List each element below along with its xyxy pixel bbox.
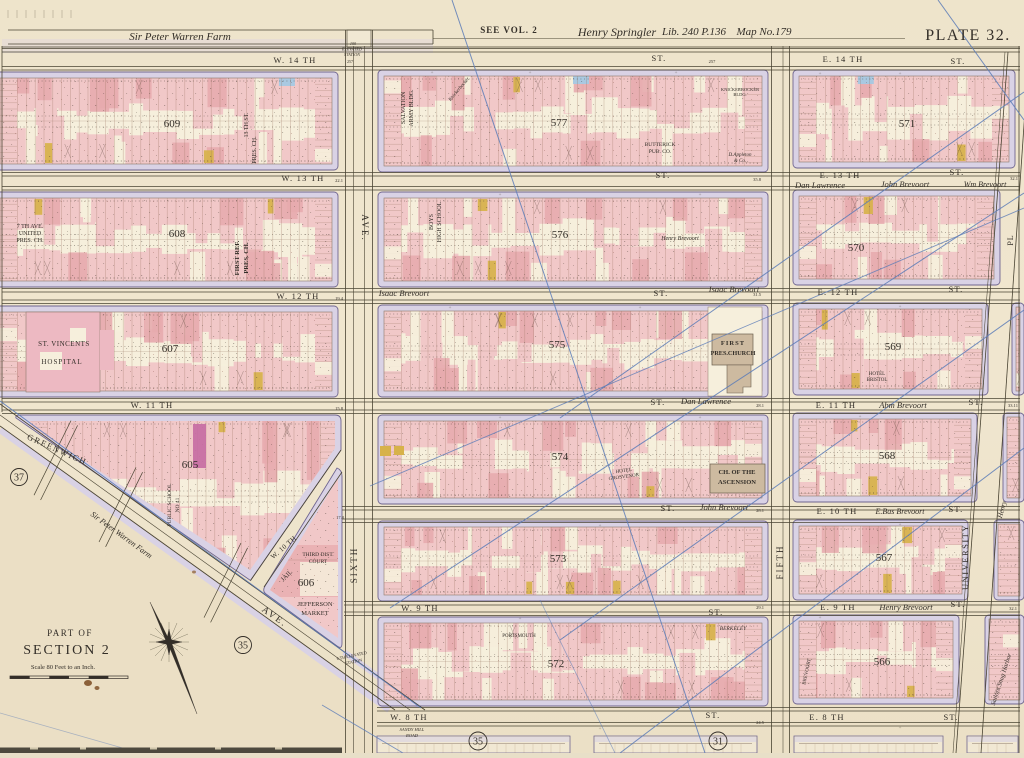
svg-text:Isaac Brevoort: Isaac Brevoort — [708, 284, 760, 294]
svg-text:PLATE 32.: PLATE 32. — [925, 27, 1011, 44]
svg-text:+: + — [699, 416, 702, 421]
svg-text:+: + — [899, 726, 902, 731]
svg-text:ARMY BLDG.: ARMY BLDG. — [409, 89, 415, 127]
svg-text:NO 41: NO 41 — [175, 497, 181, 512]
svg-text:SEE VOL. 2: SEE VOL. 2 — [480, 25, 537, 35]
svg-text:+: + — [449, 306, 452, 311]
svg-text:ASCENSION: ASCENSION — [718, 479, 756, 486]
svg-text:606: 606 — [298, 577, 315, 589]
svg-text:566: 566 — [874, 656, 891, 668]
svg-text:ELEVATED: ELEVATED — [341, 47, 362, 52]
svg-text:+: + — [599, 727, 602, 732]
svg-text:+: + — [899, 523, 902, 528]
svg-text:7 TH AVE.: 7 TH AVE. — [17, 224, 44, 230]
svg-text:15.8: 15.8 — [335, 406, 344, 411]
svg-text:Map No.179: Map No.179 — [736, 26, 793, 38]
svg-text:W. 8 TH: W. 8 TH — [390, 712, 427, 722]
svg-text:SALVATION: SALVATION — [401, 91, 407, 124]
svg-text:+: + — [899, 72, 902, 77]
svg-text:605: 605 — [182, 459, 199, 471]
svg-text:SIXTH: SIXTH — [349, 547, 359, 584]
svg-text:571: 571 — [899, 118, 916, 130]
svg-text:13 TH ST.: 13 TH ST. — [244, 112, 250, 137]
svg-text:PART OF: PART OF — [47, 628, 93, 638]
svg-text:+: + — [431, 71, 434, 76]
svg-text:574: 574 — [552, 451, 569, 463]
svg-text:ST.: ST. — [948, 504, 963, 514]
svg-text:+: + — [529, 71, 532, 76]
svg-text:609: 609 — [164, 118, 181, 130]
svg-text:32.1: 32.1 — [1010, 176, 1018, 181]
svg-text:35: 35 — [473, 737, 483, 748]
svg-text:BOYS: BOYS — [429, 214, 435, 230]
svg-text:E. 8 TH: E. 8 TH — [809, 712, 844, 722]
svg-text:ST.: ST. — [651, 53, 666, 63]
svg-text:SANDY HILL: SANDY HILL — [400, 727, 425, 732]
svg-text:UNIVERSITY: UNIVERSITY — [960, 524, 970, 590]
svg-text:35: 35 — [238, 641, 248, 652]
svg-text:+: + — [819, 72, 822, 77]
svg-text:ST.: ST. — [705, 710, 720, 720]
svg-text:Isaac Brevoort: Isaac Brevoort — [378, 288, 430, 298]
svg-text:575: 575 — [549, 339, 566, 351]
svg-text:37: 37 — [14, 473, 24, 484]
svg-text:28.1: 28.1 — [756, 508, 764, 513]
svg-text:HOSPITAL: HOSPITAL — [41, 358, 82, 366]
svg-text:W. 13 TH: W. 13 TH — [282, 173, 325, 183]
svg-text:Henry Springler: Henry Springler — [577, 25, 657, 39]
svg-text:ST.: ST. — [653, 288, 668, 298]
svg-text:E. 14 TH: E. 14 TH — [823, 54, 864, 64]
svg-text:ST.: ST. — [708, 607, 723, 617]
svg-text:W. 11 TH: W. 11 TH — [131, 400, 174, 410]
svg-text:AVE.: AVE. — [360, 214, 370, 242]
svg-text:32.1: 32.1 — [1009, 606, 1017, 611]
svg-text:SECTION 2: SECTION 2 — [23, 643, 111, 658]
svg-text:Abm Brevoort: Abm Brevoort — [878, 400, 927, 410]
svg-text:PL: PL — [1006, 234, 1015, 245]
svg-text:BERKELEY: BERKELEY — [720, 626, 748, 632]
svg-text:PUB. CO.: PUB. CO. — [649, 149, 672, 155]
svg-text:573: 573 — [550, 553, 567, 565]
svg-text:ST. VINCENTS: ST. VINCENTS — [38, 340, 90, 348]
svg-text:17.8: 17.8 — [336, 515, 345, 520]
svg-text:PRES. CH.: PRES. CH. — [252, 136, 258, 164]
svg-text:STATION: STATION — [344, 52, 360, 57]
svg-text:ST.: ST. — [660, 503, 675, 513]
svg-text:ST.: ST. — [655, 170, 670, 180]
svg-text:PRES. CH.: PRES. CH. — [16, 238, 44, 244]
svg-text:608: 608 — [169, 228, 186, 240]
svg-text:35.8: 35.8 — [753, 177, 762, 182]
svg-text:570: 570 — [848, 242, 865, 254]
svg-text:FIRST: FIRST — [721, 340, 745, 347]
svg-text:+: + — [599, 524, 602, 529]
svg-text:577: 577 — [551, 117, 568, 129]
svg-text:CH. OF THE: CH. OF THE — [718, 469, 755, 476]
svg-text:ST.: ST. — [950, 599, 965, 609]
svg-text:22.1: 22.1 — [335, 178, 343, 183]
svg-text:BRISTOL: BRISTOL — [867, 378, 888, 383]
svg-text:+: + — [859, 193, 862, 198]
svg-text:Wm Brevoort: Wm Brevoort — [964, 180, 1007, 189]
svg-text:John Brevoort: John Brevoort — [700, 502, 749, 512]
svg-text:+: + — [499, 193, 502, 198]
svg-text:576: 576 — [552, 229, 569, 241]
svg-text:ST.: ST. — [950, 56, 965, 66]
svg-text:ST.: ST. — [650, 397, 665, 407]
svg-text:THIRD DIST.: THIRD DIST. — [302, 552, 334, 558]
svg-text:& Co.: & Co. — [734, 159, 746, 164]
svg-text:+: + — [819, 616, 822, 621]
svg-text:D.Appleton: D.Appleton — [728, 153, 752, 158]
svg-text:John Brevoort: John Brevoort — [881, 179, 930, 189]
svg-text:PUBLIC SCHOOL: PUBLIC SCHOOL — [167, 483, 173, 527]
svg-text:+: + — [699, 193, 702, 198]
svg-text:567: 567 — [876, 552, 893, 564]
svg-text:E. 13 TH: E. 13 TH — [820, 170, 861, 180]
svg-text:MARKET: MARKET — [301, 610, 328, 617]
svg-text:28.1: 28.1 — [756, 403, 764, 408]
svg-text:W. 12 TH: W. 12 TH — [277, 291, 320, 301]
svg-text:Scale 80 Feet to an Inch.: Scale 80 Feet to an Inch. — [31, 664, 96, 671]
svg-text:+: + — [859, 415, 862, 420]
svg-text:JEFFERSON: JEFFERSON — [297, 601, 332, 608]
svg-text:BUTTERICK: BUTTERICK — [645, 142, 676, 148]
svg-text:+: + — [499, 416, 502, 421]
svg-text:W. 14 TH: W. 14 TH — [274, 55, 317, 65]
svg-text:607: 607 — [162, 343, 179, 355]
svg-text:PRES.CHURCH: PRES.CHURCH — [711, 350, 756, 357]
svg-text:FIFTH: FIFTH — [775, 544, 785, 579]
svg-text:FIRST REF.: FIRST REF. — [234, 240, 241, 275]
svg-text:E. 10 TH: E. 10 TH — [817, 506, 858, 516]
svg-text:+: + — [899, 305, 902, 310]
svg-text:E. 9 TH: E. 9 TH — [820, 602, 855, 612]
svg-text:Henry Brevoort: Henry Brevoort — [660, 236, 699, 242]
svg-text:19.4: 19.4 — [335, 296, 344, 301]
svg-text:BLDG.: BLDG. — [733, 92, 746, 97]
svg-text:E. 12 TH: E. 12 TH — [818, 287, 859, 297]
svg-text:24.5: 24.5 — [756, 720, 765, 725]
svg-text:257: 257 — [347, 59, 353, 64]
svg-text:+: + — [675, 71, 678, 76]
svg-text:E. 11 TH: E. 11 TH — [816, 400, 857, 410]
svg-text:29.1: 29.1 — [756, 605, 764, 610]
svg-text:ST.: ST. — [949, 167, 964, 177]
svg-text:Lib. 240 P.136: Lib. 240 P.136 — [661, 26, 726, 38]
svg-text:PORTSMOUTH: PORTSMOUTH — [502, 634, 536, 639]
svg-text:33.11: 33.11 — [1008, 403, 1018, 408]
svg-text:Dan Lawrence: Dan Lawrence — [794, 180, 845, 190]
svg-text:+: + — [519, 617, 522, 622]
svg-text:568: 568 — [879, 450, 896, 462]
svg-text:+: + — [639, 306, 642, 311]
svg-text:Sir Peter Warren Farm: Sir Peter Warren Farm — [129, 31, 231, 43]
svg-text:31.5: 31.5 — [753, 292, 762, 297]
svg-text:100: 100 — [350, 41, 357, 46]
svg-text:ST.: ST. — [968, 397, 983, 407]
svg-text:ST.: ST. — [948, 284, 963, 294]
svg-text:569: 569 — [885, 341, 902, 353]
svg-text:572: 572 — [548, 658, 565, 670]
svg-text:HOTEL: HOTEL — [869, 372, 885, 377]
svg-text:257: 257 — [709, 59, 717, 64]
svg-text:ROAD: ROAD — [405, 733, 419, 738]
svg-text:UNITED: UNITED — [19, 231, 42, 237]
svg-text:HIGH SCHOOL: HIGH SCHOOL — [437, 201, 443, 242]
svg-text:COURT: COURT — [309, 559, 328, 565]
svg-text:Dan Lawrence: Dan Lawrence — [680, 396, 731, 406]
svg-text:E.Bas Brevoort: E.Bas Brevoort — [874, 507, 925, 516]
svg-text:31: 31 — [713, 737, 723, 748]
svg-text:PRES. CH.: PRES. CH. — [243, 242, 250, 274]
svg-text:Henry Brevoort: Henry Brevoort — [878, 602, 933, 612]
svg-text:ST.: ST. — [943, 712, 958, 722]
svg-text:W. 9 TH: W. 9 TH — [401, 603, 438, 613]
